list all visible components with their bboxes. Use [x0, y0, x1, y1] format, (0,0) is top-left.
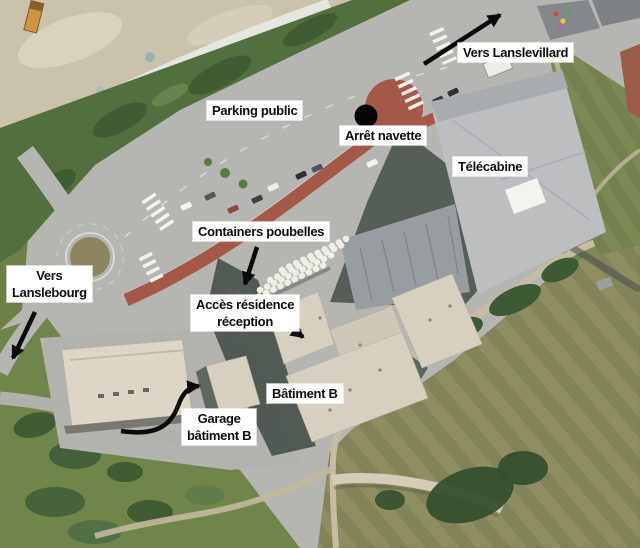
label-garage-batiment-b: Garage bâtiment B	[182, 409, 256, 445]
label-arret-navette: Arrêt navette	[340, 126, 426, 145]
label-vers-lanslebourg: Vers Lanslebourg	[7, 266, 92, 302]
aerial-photo	[0, 0, 640, 548]
label-batiment-b: Bâtiment B	[267, 384, 343, 403]
label-vers-lanslevillard: Vers Lanslevillard	[458, 43, 573, 62]
label-parking-public: Parking public	[207, 101, 302, 120]
aerial-access-map: Vers Lanslevillard Parking public Arrêt …	[0, 0, 640, 548]
label-containers-poubelles: Containers poubelles	[193, 222, 329, 241]
label-acces-residence: Accès résidence réception	[191, 295, 299, 331]
label-telecabine: Télécabine	[453, 157, 527, 176]
shuttle-stop-dot	[355, 105, 378, 128]
